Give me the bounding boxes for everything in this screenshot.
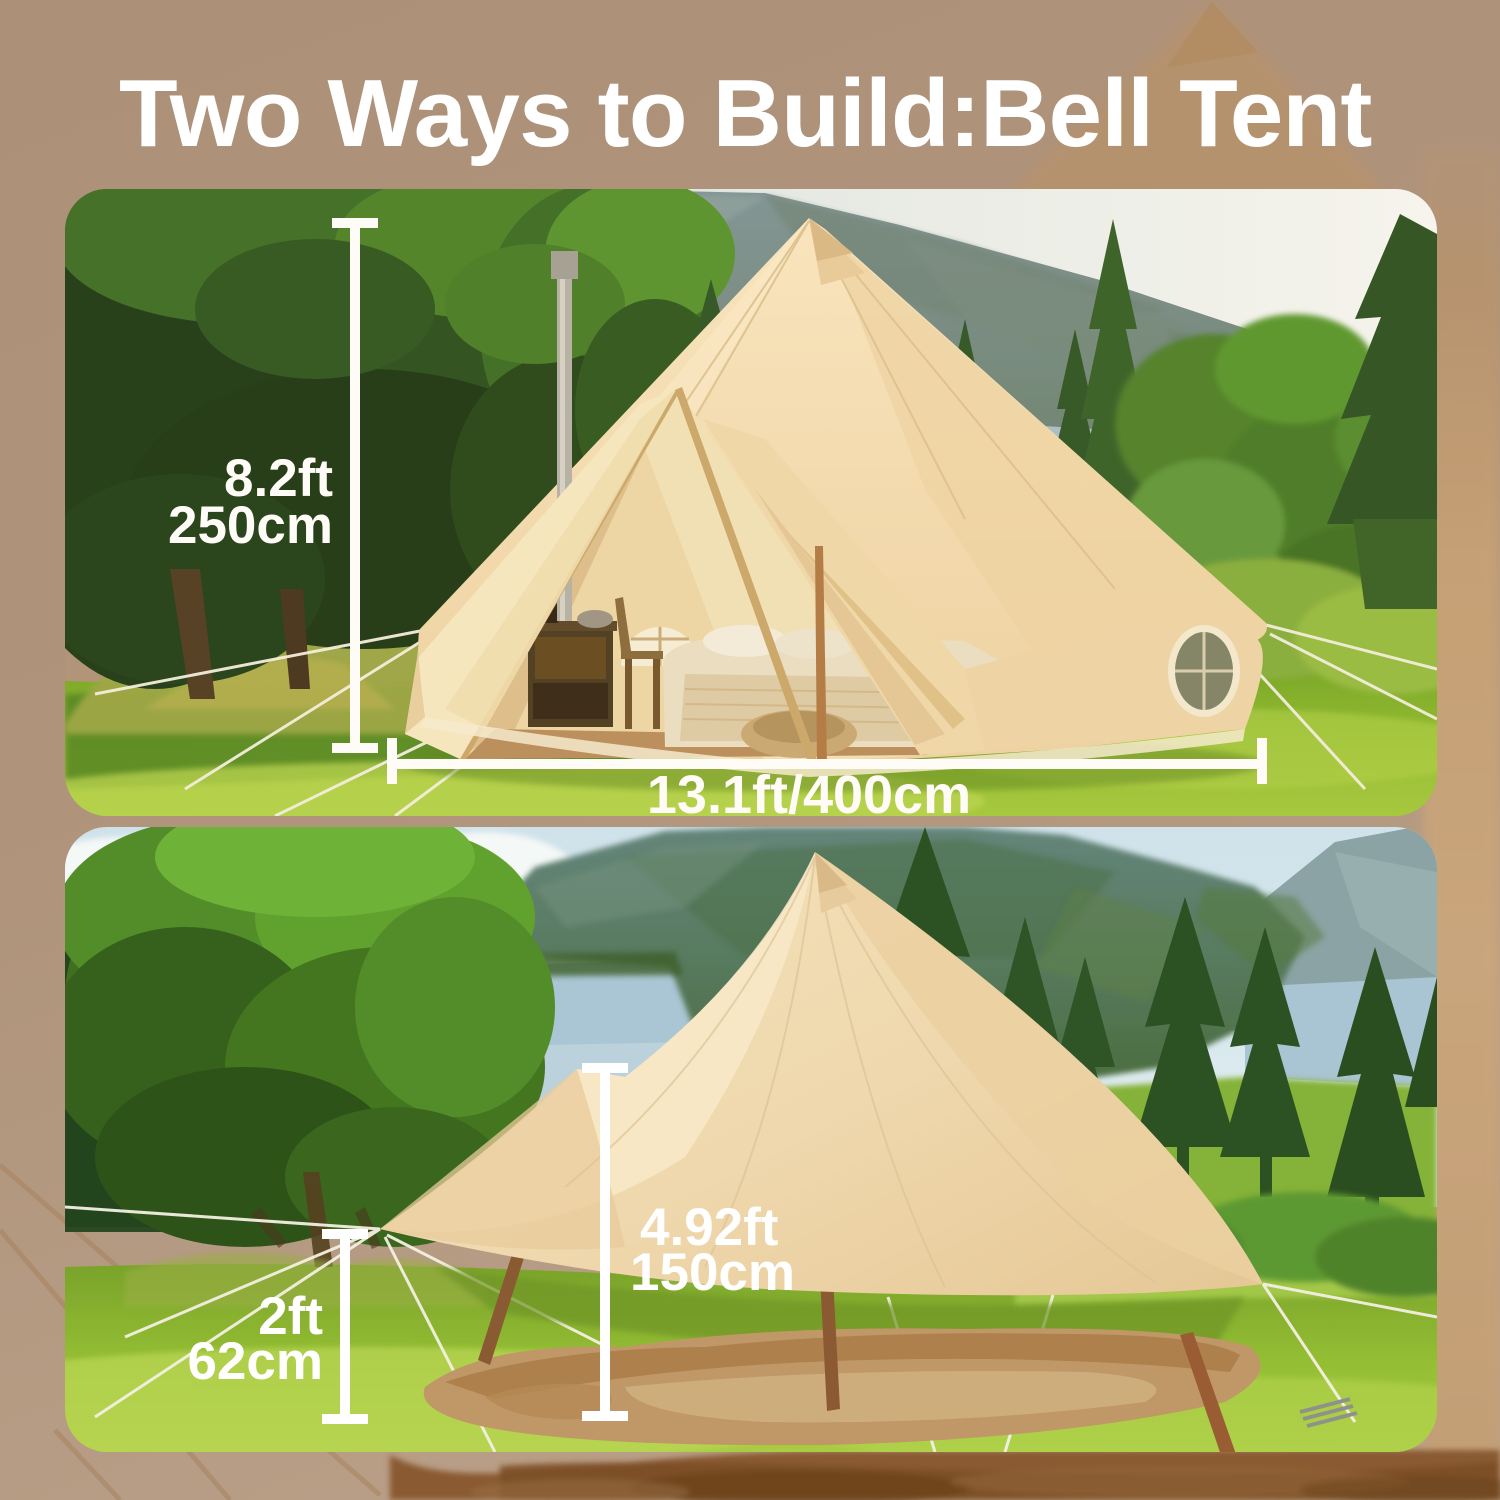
svg-text:62cm: 62cm [187,1332,323,1391]
svg-text:150cm: 150cm [630,1243,795,1302]
